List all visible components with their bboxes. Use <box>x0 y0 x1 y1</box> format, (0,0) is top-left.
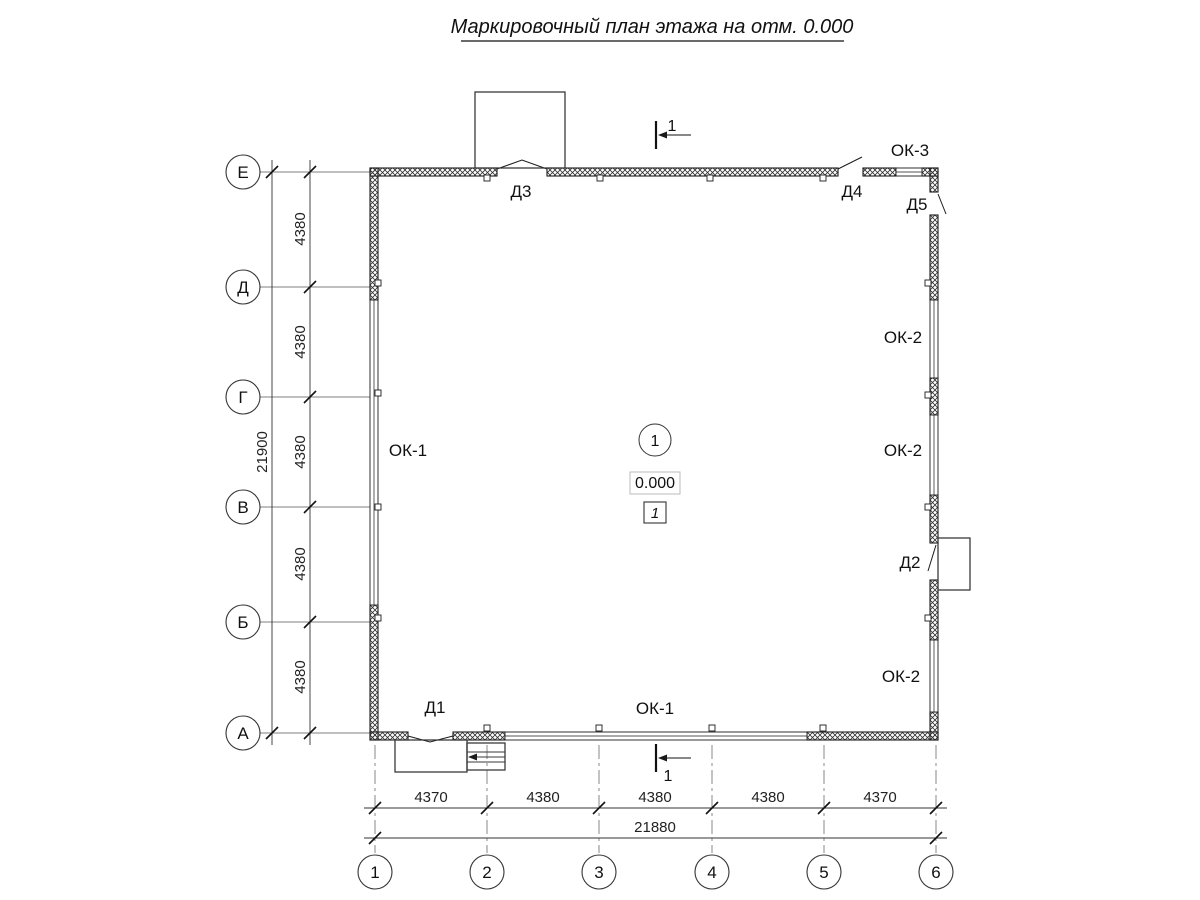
door-d5-swing <box>938 194 946 214</box>
label-door-d3: Д3 <box>511 182 532 201</box>
dim-left-seg-2: 4380 <box>292 325 309 358</box>
axis-col-2: 2 <box>482 863 491 882</box>
dim-bottom-seg-2: 4380 <box>526 789 559 806</box>
label-door-d5: Д5 <box>907 195 928 214</box>
room-number: 1 <box>651 505 659 522</box>
wall-bottom-3 <box>807 732 938 740</box>
wall-right-1 <box>930 168 938 192</box>
section-label-bottom: 1 <box>664 768 673 785</box>
vestibule-top <box>475 92 565 168</box>
porch-d2 <box>938 538 970 590</box>
dimension-ticks <box>266 166 942 844</box>
dim-bottom-seg-4: 4380 <box>751 789 784 806</box>
axis-grid-lines <box>260 172 936 853</box>
wall-right-2 <box>930 215 938 300</box>
dim-bottom-seg-5: 4370 <box>863 789 896 806</box>
dim-bottom-seg-3: 4380 <box>638 789 671 806</box>
axis-row-a: А <box>237 724 249 743</box>
label-window-ok2-top: ОК-2 <box>884 328 922 347</box>
porch-d1 <box>395 740 467 772</box>
axis-row-d: Д <box>237 278 249 297</box>
axis-row-b: Б <box>237 613 248 632</box>
door-d2-swing <box>928 545 936 571</box>
elevation-value: 0.000 <box>635 475 675 492</box>
axis-row-e: Е <box>237 163 248 182</box>
door-d4-swing <box>838 157 862 169</box>
page-title: Маркировочный план этажа на отм. 0.000 <box>451 16 854 38</box>
wall-right-5 <box>930 580 938 640</box>
wall-top-3 <box>863 168 896 176</box>
section-label-top: 1 <box>668 118 677 135</box>
dim-bottom-total: 21880 <box>634 819 676 836</box>
label-door-d4: Д4 <box>842 182 863 201</box>
axis-bubbles-bottom: 1 2 3 4 5 6 <box>358 855 953 889</box>
floor-plan-drawing: Маркировочный план этажа на отм. 0.000 <box>0 0 1200 900</box>
axis-col-5: 5 <box>819 863 828 882</box>
drawing-header: Маркировочный план этажа на отм. 0.000 <box>451 16 854 41</box>
dim-bottom-seg-1: 4370 <box>414 789 447 806</box>
axis-row-g: Г <box>238 388 247 407</box>
label-window-ok2-middle: ОК-2 <box>884 441 922 460</box>
dim-left-seg-3: 4380 <box>292 435 309 468</box>
wall-bottom-2 <box>453 732 505 740</box>
label-window-ok2-bottom: ОК-2 <box>882 667 920 686</box>
axis-col-6: 6 <box>931 863 940 882</box>
wall-top-1 <box>370 168 497 176</box>
dim-left-total: 21900 <box>254 431 271 473</box>
label-window-ok3: ОК-3 <box>891 141 929 160</box>
section-arrow-icon <box>658 132 667 139</box>
section-mark-top: 1 <box>656 118 691 149</box>
room-markers: 1 0.000 1 <box>630 424 680 523</box>
section-arrow-icon <box>658 755 667 762</box>
axis-col-1: 1 <box>370 863 379 882</box>
label-door-d2: Д2 <box>900 553 921 572</box>
axis-col-3: 3 <box>594 863 603 882</box>
wall-bottom-1 <box>370 732 408 740</box>
wall-right-6 <box>930 712 938 740</box>
room-marker-number: 1 <box>651 433 660 450</box>
label-window-ok1-bottom: ОК-1 <box>636 699 674 718</box>
label-window-ok1-left: ОК-1 <box>389 441 427 460</box>
steps-direction-arrow-icon <box>468 754 477 761</box>
section-mark-bottom: 1 <box>656 744 691 785</box>
door-d1-swing <box>408 736 453 742</box>
door-swings <box>408 157 946 742</box>
axis-col-4: 4 <box>707 863 716 882</box>
dim-left-seg-4: 4380 <box>292 547 309 580</box>
wall-top-2 <box>547 168 838 176</box>
wall-right-4 <box>930 495 938 543</box>
floor-plan-svg: Маркировочный план этажа на отм. 0.000 <box>0 0 1200 900</box>
label-door-d1: Д1 <box>425 698 446 717</box>
dim-left-seg-1: 4380 <box>292 212 309 245</box>
dimension-lines: 4380 4380 4380 4380 4380 21900 4370 4380… <box>254 160 947 844</box>
wall-left-lower <box>370 605 378 740</box>
axis-row-v: В <box>237 498 248 517</box>
dim-left-seg-5: 4380 <box>292 660 309 693</box>
